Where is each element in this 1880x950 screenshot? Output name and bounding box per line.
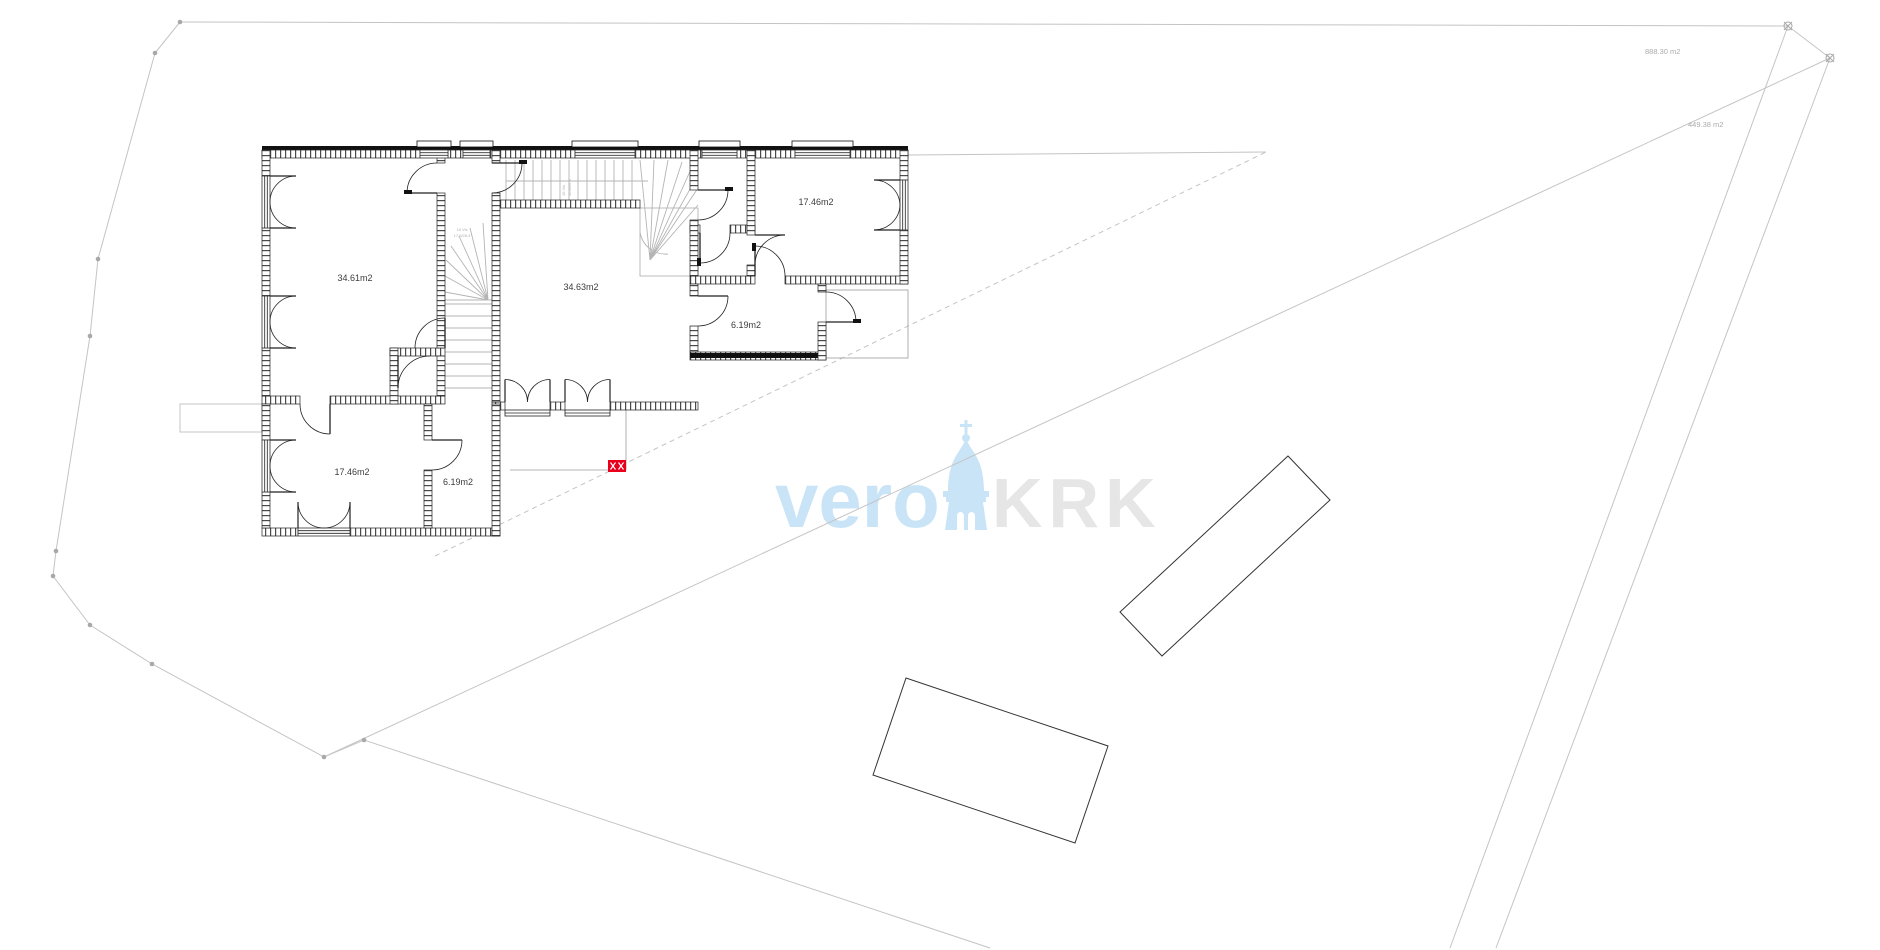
exterior-wall [550,402,565,410]
boundary-dot [362,738,367,743]
exterior-wall [448,150,463,158]
exterior-wall [737,150,795,158]
boundary-right-diagonal-1 [1450,26,1788,948]
interior-wall [690,276,755,284]
door-arc [755,246,785,276]
site-plan-canvas: vero KRK [0,0,1880,950]
window [874,180,908,230]
interior-wall [424,404,432,440]
boundary-dot [178,20,183,25]
interior-wall [437,356,445,396]
door-arc [432,440,462,470]
exterior-wall [262,404,270,440]
french-doors [505,380,610,417]
interior-wall [262,396,300,404]
room-label: 34.63m2 [563,282,598,292]
boundary-dot [153,51,158,56]
stair-label: 16.8/26.9 [567,179,572,196]
parcel-area-label: 449.38 m2 [1688,120,1723,129]
boundary-dot [322,755,327,760]
exterior-wall [262,492,270,528]
outbuilding-rect [873,678,1108,843]
boundary-dot [150,662,155,667]
interior-wall [690,284,698,296]
boundary-dot [51,574,56,579]
door-arc [698,296,728,326]
site-boundary [53,22,1830,948]
staircase-main [506,160,698,276]
boundary-right-diagonal-2 [1496,58,1830,948]
exterior-wall [262,150,420,158]
door-arc [505,380,550,417]
stair-label: 16 Vis [561,185,566,196]
interior-wall [492,150,500,163]
exterior-wall [262,150,270,176]
exterior-wall [262,228,270,296]
boundary-dot [96,257,101,262]
interior-wall [690,326,698,352]
exterior-wall [818,284,826,292]
room-label: 17.46m2 [798,197,833,207]
room-label: 6.19m2 [731,320,761,330]
boundary-top-line [180,22,1788,26]
door-arc [698,190,728,220]
survey-marker-icon [1826,54,1834,62]
boundary-dot [54,549,59,554]
interior-wall [330,396,445,404]
window [298,502,350,536]
room-label: 17.46m2 [334,467,369,477]
stair-label: 17.9/28.4 [454,233,471,238]
boundary-vertex-dots [51,20,367,760]
utility-marker [608,460,626,472]
room-label: 6.19m2 [443,477,473,487]
room-label: 34.61m2 [337,273,372,283]
exterior-wall [610,402,698,410]
exterior-wall [262,348,270,396]
exterior-wall [850,150,908,158]
door-arc [300,404,330,434]
door-arc [492,163,522,193]
interior-wall [500,200,640,208]
exterior-wall [900,230,908,284]
interior-wall [390,348,398,404]
vero-wordmark: vero [775,456,940,544]
window [262,296,296,348]
door-arc [398,356,430,388]
exterior-wall [818,322,826,360]
terrace-outline [826,290,908,358]
exterior-wall-band [690,353,826,358]
left-terrace-outline [180,404,262,432]
interior-wall [747,265,755,276]
interior-wall [492,193,500,402]
door-arc [700,233,730,263]
boundary-dot [88,334,93,339]
doors [300,163,856,470]
interior-wall [747,150,755,235]
door-arc [826,292,856,322]
window [262,176,296,228]
krk-wordmark: KRK [992,464,1162,542]
staircase-winder [445,223,492,388]
door-arc [407,163,437,193]
site-plan-drawing: vero KRK [0,0,1880,950]
exterior-wall [262,528,298,536]
exterior-wall [350,528,500,536]
door-arc [565,380,610,417]
stair-label: 16 Vis [456,227,467,232]
exterior-wall [900,150,908,180]
boundary-dot [88,623,93,628]
inner-line-horizontal [908,152,1266,155]
bell-tower-icon [943,420,989,530]
interior-wall [785,276,908,284]
parcel-area-label: 888.30 m2 [1645,47,1680,56]
boundary-top-right-edge [1788,26,1830,58]
window [262,440,296,492]
interior-wall [492,404,500,536]
windows-left [262,176,296,492]
interior-wall [437,193,445,348]
door-leaf-ticks [404,160,861,323]
exterior-wall [490,150,575,158]
interior-wall [690,150,698,190]
interior-wall [424,470,432,528]
watermark: vero KRK [775,420,1162,544]
interior-wall [690,220,698,276]
